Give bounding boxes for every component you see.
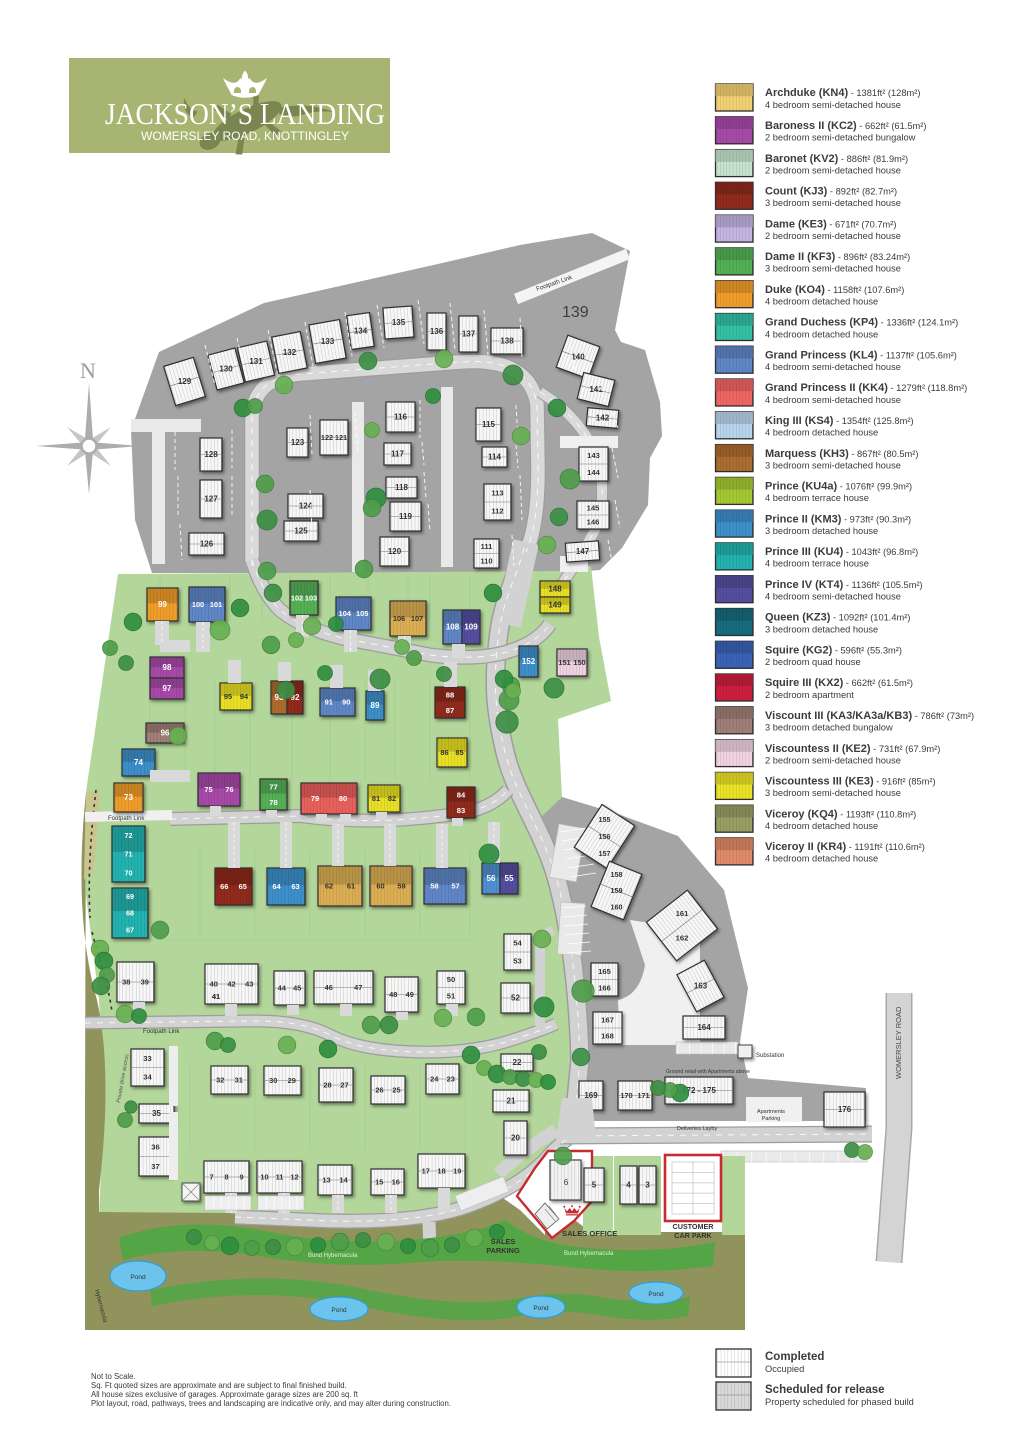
svg-text:137: 137: [462, 330, 476, 339]
svg-text:2 bedroom apartment: 2 bedroom apartment: [765, 690, 854, 700]
svg-text:123: 123: [291, 438, 305, 447]
svg-text:128: 128: [204, 450, 218, 459]
svg-text:102: 102: [291, 594, 303, 603]
svg-text:3 bedroom semi-detached house: 3 bedroom semi-detached house: [765, 198, 901, 208]
svg-text:18: 18: [437, 1167, 445, 1176]
svg-text:Not to Scale.: Not to Scale.: [91, 1372, 136, 1381]
svg-text:4 bedroom semi-detached house: 4 bedroom semi-detached house: [765, 592, 901, 602]
svg-text:98: 98: [163, 663, 172, 672]
svg-text:88: 88: [446, 690, 454, 699]
svg-text:Viscountess II (KE2) - 731ft²: Viscountess II (KE2) - 731ft² (67.9m²): [765, 743, 940, 755]
svg-text:37: 37: [151, 1162, 159, 1171]
svg-text:84: 84: [457, 790, 466, 799]
svg-text:59: 59: [397, 882, 405, 891]
svg-text:49: 49: [406, 990, 414, 999]
svg-text:Viceroy II (KR4) - 1191ft² (11: Viceroy II (KR4) - 1191ft² (110.6m²): [765, 841, 925, 853]
svg-text:Parking: Parking: [762, 1116, 781, 1122]
svg-text:4 bedroom detached house: 4 bedroom detached house: [765, 854, 878, 864]
svg-text:4 bedroom terrace house: 4 bedroom terrace house: [765, 493, 869, 503]
svg-text:32: 32: [216, 1076, 224, 1085]
svg-text:4 bedroom terrace house: 4 bedroom terrace house: [765, 559, 869, 569]
svg-text:Sq. Ft quoted sizes are approx: Sq. Ft quoted sizes are approximate and …: [91, 1381, 347, 1390]
svg-text:45: 45: [293, 984, 301, 993]
svg-text:60: 60: [376, 882, 384, 891]
svg-text:165: 165: [598, 967, 611, 976]
svg-text:58: 58: [430, 882, 438, 891]
svg-text:149: 149: [548, 601, 562, 610]
svg-text:111: 111: [481, 542, 494, 551]
svg-text:52: 52: [511, 994, 520, 1003]
svg-text:Prince III (KU4) - 1043ft² (96: Prince III (KU4) - 1043ft² (96.8m²): [765, 546, 918, 558]
svg-text:80: 80: [339, 794, 347, 803]
svg-text:95: 95: [224, 692, 232, 701]
svg-text:Squire (KG2) - 596ft² (55.3m²): Squire (KG2) - 596ft² (55.3m²): [765, 645, 902, 657]
svg-text:113: 113: [491, 489, 503, 498]
svg-text:139: 139: [562, 304, 589, 321]
svg-text:31: 31: [235, 1076, 243, 1085]
svg-text:Grand Princess (KL4) - 1137ft²: Grand Princess (KL4) - 1137ft² (105.6m²): [765, 349, 957, 361]
svg-text:143: 143: [587, 451, 600, 460]
svg-text:116: 116: [394, 413, 407, 422]
svg-text:3 bedroom detached house: 3 bedroom detached house: [765, 624, 878, 634]
svg-text:4 bedroom detached house: 4 bedroom detached house: [765, 428, 878, 438]
svg-text:20: 20: [511, 1134, 520, 1143]
svg-text:56: 56: [487, 874, 496, 883]
svg-text:30: 30: [269, 1076, 277, 1085]
svg-text:3 bedroom semi-detached house: 3 bedroom semi-detached house: [765, 788, 901, 798]
svg-text:Marquess (KH3) - 867ft² (80.5m: Marquess (KH3) - 867ft² (80.5m²): [765, 448, 919, 460]
svg-text:Viceroy (KQ4) - 1193ft² (110.8: Viceroy (KQ4) - 1193ft² (110.8m²): [765, 808, 916, 820]
svg-text:PARKING: PARKING: [486, 1246, 520, 1255]
svg-text:65: 65: [239, 882, 247, 891]
svg-text:69: 69: [126, 892, 134, 901]
svg-text:107: 107: [411, 614, 423, 623]
svg-text:26: 26: [375, 1086, 383, 1095]
svg-text:138: 138: [500, 337, 514, 346]
svg-text:46: 46: [325, 983, 333, 992]
svg-text:Dame II (KF3) - 896ft² (83.24m: Dame II (KF3) - 896ft² (83.24m²): [765, 251, 910, 263]
svg-text:132: 132: [283, 348, 297, 357]
svg-text:133: 133: [321, 337, 335, 346]
svg-text:Dame (KE3) - 671ft² (70.7m²): Dame (KE3) - 671ft² (70.7m²): [765, 218, 897, 230]
svg-text:10: 10: [260, 1173, 268, 1182]
svg-text:166: 166: [598, 983, 611, 992]
svg-text:WOMERSLEY ROAD: WOMERSLEY ROAD: [894, 1006, 903, 1079]
svg-text:Footpath Link: Footpath Link: [143, 1029, 180, 1035]
svg-text:70: 70: [125, 868, 133, 877]
svg-text:155: 155: [599, 815, 611, 824]
svg-text:147: 147: [576, 547, 590, 556]
svg-text:Property scheduled for phased: Property scheduled for phased build: [765, 1397, 914, 1407]
svg-text:119: 119: [399, 512, 412, 521]
svg-text:79: 79: [311, 794, 319, 803]
svg-text:3 bedroom detached house: 3 bedroom detached house: [765, 526, 878, 536]
svg-text:77: 77: [269, 782, 277, 791]
svg-text:97: 97: [163, 684, 172, 693]
svg-text:3: 3: [645, 1181, 650, 1190]
svg-text:73: 73: [124, 793, 133, 802]
svg-text:Bund Hybernacula: Bund Hybernacula: [308, 1253, 358, 1259]
svg-text:5: 5: [592, 1181, 597, 1190]
svg-text:109: 109: [464, 623, 478, 632]
svg-text:Occupied: Occupied: [765, 1364, 804, 1374]
svg-text:140: 140: [571, 353, 585, 362]
svg-text:Prince II (KM3) - 973ft² (90.3: Prince II (KM3) - 973ft² (90.3m²): [765, 513, 911, 525]
svg-text:44: 44: [278, 984, 287, 993]
svg-text:Squire III (KX2) - 662ft² (61.: Squire III (KX2) - 662ft² (61.5m²): [765, 677, 913, 689]
svg-text:28: 28: [323, 1081, 331, 1090]
svg-text:3 bedroom semi-detached house: 3 bedroom semi-detached house: [765, 460, 901, 470]
svg-text:163: 163: [694, 982, 708, 991]
svg-text:8: 8: [224, 1173, 228, 1182]
svg-text:63: 63: [291, 882, 299, 891]
svg-text:25: 25: [392, 1086, 400, 1095]
svg-text:Substation: Substation: [756, 1053, 784, 1059]
svg-text:71: 71: [125, 850, 133, 859]
svg-text:62: 62: [325, 882, 333, 891]
svg-text:106: 106: [393, 614, 405, 623]
svg-text:167: 167: [601, 1016, 614, 1025]
svg-text:CAR PARK: CAR PARK: [674, 1231, 712, 1240]
svg-text:Deliveries Layby: Deliveries Layby: [677, 1126, 718, 1132]
svg-text:47: 47: [354, 983, 362, 992]
svg-text:162: 162: [676, 933, 689, 942]
svg-text:115: 115: [482, 420, 495, 429]
svg-text:91: 91: [325, 698, 333, 707]
svg-text:3 bedroom semi-detached house: 3 bedroom semi-detached house: [765, 264, 901, 274]
svg-text:Duke (KO4) - 1158ft² (107.6m²): Duke (KO4) - 1158ft² (107.6m²): [765, 284, 904, 296]
svg-text:41: 41: [212, 992, 220, 1001]
svg-text:9: 9: [239, 1173, 243, 1182]
svg-text:64: 64: [272, 882, 281, 891]
svg-text:130: 130: [219, 365, 233, 374]
svg-text:43: 43: [245, 980, 253, 989]
svg-text:66: 66: [220, 882, 228, 891]
svg-text:27: 27: [340, 1081, 348, 1090]
svg-text:142: 142: [596, 414, 610, 423]
svg-text:19: 19: [453, 1167, 461, 1176]
svg-text:156: 156: [599, 832, 611, 841]
svg-text:127: 127: [204, 495, 218, 504]
svg-text:Queen (KZ3) - 1092ft² (101.4m²: Queen (KZ3) - 1092ft² (101.4m²): [765, 612, 911, 624]
svg-text:135: 135: [392, 318, 406, 327]
svg-text:90: 90: [342, 698, 350, 707]
svg-text:Pond: Pond: [130, 1274, 146, 1281]
svg-text:36: 36: [151, 1142, 159, 1151]
svg-text:121: 121: [335, 433, 347, 442]
svg-text:114: 114: [488, 453, 501, 462]
svg-text:57: 57: [451, 882, 459, 891]
svg-text:15: 15: [375, 1178, 383, 1187]
svg-text:150: 150: [573, 658, 585, 667]
svg-text:160: 160: [611, 902, 623, 911]
svg-text:7: 7: [209, 1173, 213, 1182]
svg-text:14: 14: [339, 1176, 348, 1185]
svg-text:158: 158: [611, 870, 623, 879]
svg-text:125: 125: [294, 527, 308, 536]
svg-text:17: 17: [422, 1167, 430, 1176]
svg-text:2 bedroom semi-detached house: 2 bedroom semi-detached house: [765, 231, 901, 241]
svg-text:74: 74: [134, 758, 143, 767]
svg-text:Viscountess III (KE3) - 916ft²: Viscountess III (KE3) - 916ft² (85m²): [765, 776, 936, 788]
svg-text:23: 23: [447, 1075, 455, 1084]
svg-text:151: 151: [558, 658, 570, 667]
svg-text:3 bedroom detached bungalow: 3 bedroom detached bungalow: [765, 723, 893, 733]
svg-text:104: 104: [339, 609, 352, 618]
svg-text:4 bedroom detached house: 4 bedroom detached house: [765, 297, 878, 307]
svg-text:117: 117: [391, 450, 404, 459]
svg-text:Completed: Completed: [765, 1351, 824, 1363]
svg-text:22: 22: [513, 1058, 522, 1067]
svg-text:131: 131: [249, 357, 263, 366]
svg-text:12: 12: [290, 1173, 298, 1182]
svg-text:94: 94: [240, 692, 249, 701]
svg-text:122: 122: [321, 433, 333, 442]
svg-text:86: 86: [440, 748, 448, 757]
svg-text:Pond: Pond: [533, 1305, 549, 1312]
svg-text:170: 170: [620, 1091, 632, 1100]
svg-text:42: 42: [227, 980, 235, 989]
svg-text:16: 16: [392, 1178, 400, 1187]
svg-text:72: 72: [125, 831, 133, 840]
svg-text:Footpath Link: Footpath Link: [108, 816, 145, 822]
svg-text:101: 101: [210, 600, 222, 609]
svg-text:Prince IV (KT4) - 1136ft² (105: Prince IV (KT4) - 1136ft² (105.5m²): [765, 579, 923, 591]
svg-text:105: 105: [356, 609, 368, 618]
svg-text:2 bedroom semi-detached house: 2 bedroom semi-detached house: [765, 165, 901, 175]
svg-text:2 bedroom quad house: 2 bedroom quad house: [765, 657, 861, 667]
svg-text:100: 100: [192, 600, 204, 609]
svg-text:SALES OFFICE: SALES OFFICE: [562, 1229, 617, 1238]
svg-text:Apartments: Apartments: [757, 1109, 785, 1115]
svg-text:Count (KJ3) - 892ft² (82.7m²): Count (KJ3) - 892ft² (82.7m²): [765, 186, 897, 198]
svg-text:29: 29: [288, 1076, 296, 1085]
svg-text:2 bedroom semi-detached bungal: 2 bedroom semi-detached bungalow: [765, 133, 916, 143]
svg-text:51: 51: [447, 991, 456, 1000]
svg-text:129: 129: [178, 377, 192, 386]
svg-text:N: N: [80, 358, 96, 383]
svg-text:112: 112: [491, 507, 503, 516]
svg-text:54: 54: [513, 939, 522, 948]
svg-text:All house sizes exclusive of g: All house sizes exclusive of garages. Ap…: [91, 1390, 359, 1399]
svg-text:126: 126: [200, 540, 214, 549]
svg-text:35: 35: [152, 1109, 161, 1118]
svg-text:61: 61: [347, 882, 355, 891]
svg-text:110: 110: [480, 556, 492, 565]
svg-text:Pond: Pond: [331, 1307, 347, 1314]
svg-text:Prince (KU4a) - 1076ft² (99.9m: Prince (KU4a) - 1076ft² (99.9m²): [765, 481, 912, 493]
svg-text:2 bedroom semi-detached house: 2 bedroom semi-detached house: [765, 755, 901, 765]
svg-text:146: 146: [587, 518, 600, 527]
svg-text:53: 53: [513, 957, 521, 966]
svg-text:164: 164: [697, 1023, 711, 1032]
svg-text:CUSTOMER: CUSTOMER: [673, 1222, 715, 1231]
svg-text:Pond: Pond: [648, 1291, 664, 1298]
svg-text:96: 96: [161, 729, 170, 738]
svg-text:6: 6: [564, 1178, 569, 1187]
svg-text:55: 55: [505, 874, 514, 883]
svg-text:Baroness II (KC2) - 662ft² (61: Baroness II (KC2) - 662ft² (61.5m²): [765, 120, 926, 132]
svg-text:76: 76: [225, 785, 233, 794]
svg-text:99: 99: [158, 600, 167, 609]
svg-text:4 bedroom detached house: 4 bedroom detached house: [765, 329, 878, 339]
svg-text:34: 34: [143, 1072, 152, 1081]
svg-text:13: 13: [322, 1176, 330, 1185]
svg-text:Viscount III (KA3/KA3a/KB3) -: Viscount III (KA3/KA3a/KB3) - 786ft² (73…: [765, 710, 974, 722]
svg-text:68: 68: [126, 909, 134, 918]
svg-text:48: 48: [389, 990, 397, 999]
svg-text:87: 87: [446, 706, 454, 715]
svg-text:83: 83: [457, 806, 465, 815]
svg-text:120: 120: [388, 547, 402, 556]
svg-text:168: 168: [601, 1032, 614, 1041]
svg-text:75: 75: [204, 785, 212, 794]
svg-text:33: 33: [143, 1054, 151, 1063]
svg-text:11: 11: [276, 1173, 284, 1182]
svg-text:157: 157: [599, 849, 611, 858]
svg-text:81: 81: [372, 794, 380, 803]
svg-text:161: 161: [676, 909, 689, 918]
svg-text:4 bedroom semi-detached house: 4 bedroom semi-detached house: [765, 100, 901, 110]
svg-text:Plot layout, road, pathways, t: Plot layout, road, pathways, trees and l…: [91, 1399, 451, 1408]
svg-text:152: 152: [522, 657, 536, 666]
svg-text:159: 159: [611, 886, 623, 895]
svg-text:Grand Princess II (KK4) - 1279: Grand Princess II (KK4) - 1279ft² (118.8…: [765, 382, 967, 394]
svg-text:JACKSON’S LANDING: JACKSON’S LANDING: [105, 96, 385, 131]
svg-text:Archduke (KN4) - 1381ft² (128m: Archduke (KN4) - 1381ft² (128m²): [765, 87, 920, 99]
svg-text:4 bedroom detached house: 4 bedroom detached house: [765, 821, 878, 831]
svg-text:Bund Hybernacula: Bund Hybernacula: [564, 1251, 614, 1257]
svg-text:Scheduled for release: Scheduled for release: [765, 1384, 885, 1396]
svg-text:38: 38: [122, 978, 130, 987]
svg-text:4 bedroom semi-detached house: 4 bedroom semi-detached house: [765, 362, 901, 372]
svg-text:39: 39: [141, 978, 149, 987]
svg-text:Grand Duchess (KP4) - 1336ft²: Grand Duchess (KP4) - 1336ft² (124.1m²): [765, 317, 958, 329]
svg-text:118: 118: [395, 483, 408, 492]
svg-text:144: 144: [587, 468, 600, 477]
svg-text:24: 24: [430, 1075, 439, 1084]
svg-text:21: 21: [507, 1097, 516, 1106]
svg-text:50: 50: [447, 975, 455, 984]
svg-text:4: 4: [626, 1181, 631, 1190]
svg-text:78: 78: [269, 798, 277, 807]
svg-text:Ground retail with Apartments: Ground retail with Apartments above: [666, 1069, 750, 1075]
svg-text:145: 145: [587, 504, 600, 513]
svg-text:136: 136: [430, 327, 444, 336]
svg-text:103: 103: [305, 594, 317, 603]
svg-text:4 bedroom semi-detached house: 4 bedroom semi-detached house: [765, 395, 901, 405]
svg-text:King III (KS4) - 1354ft² (125.: King III (KS4) - 1354ft² (125.8m²): [765, 415, 914, 427]
svg-text:82: 82: [388, 794, 396, 803]
svg-text:148: 148: [548, 585, 562, 594]
svg-text:67: 67: [126, 925, 134, 934]
svg-text:85: 85: [455, 748, 463, 757]
svg-text:Baronet (KV2) - 886ft² (81.9m²: Baronet (KV2) - 886ft² (81.9m²): [765, 153, 908, 165]
svg-text:WOMERSLEY ROAD, KNOTTINGLEY: WOMERSLEY ROAD, KNOTTINGLEY: [141, 131, 349, 143]
svg-text:40: 40: [210, 980, 218, 989]
svg-text:176: 176: [838, 1105, 852, 1114]
svg-text:108: 108: [446, 623, 460, 632]
svg-text:89: 89: [371, 701, 380, 710]
svg-text:134: 134: [354, 327, 368, 336]
svg-text:171: 171: [637, 1091, 649, 1100]
